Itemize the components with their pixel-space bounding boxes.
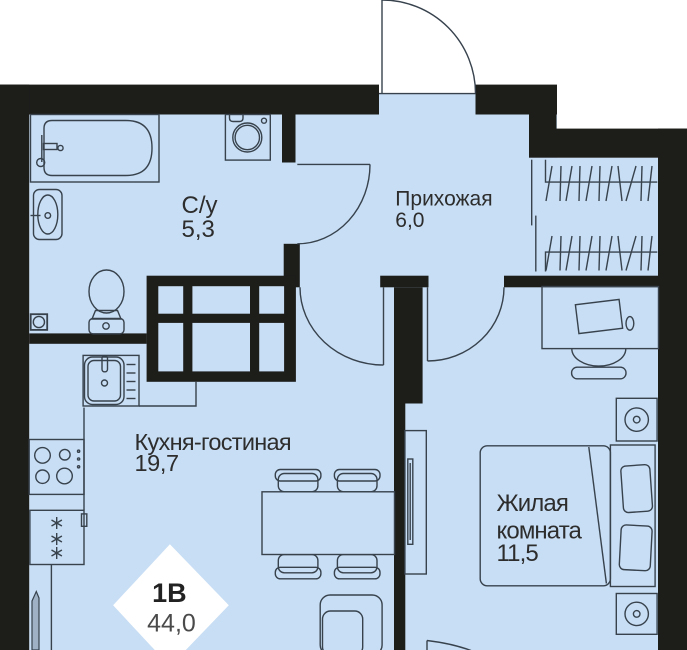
svg-text:С/у: С/у bbox=[182, 192, 218, 219]
svg-text:44,0: 44,0 bbox=[147, 609, 196, 637]
svg-text:19,7: 19,7 bbox=[135, 450, 179, 476]
svg-text:11,5: 11,5 bbox=[497, 540, 539, 567]
svg-text:Жилая: Жилая bbox=[497, 490, 568, 517]
svg-text:Прихожая: Прихожая bbox=[395, 188, 492, 211]
svg-text:1В: 1В bbox=[152, 578, 187, 608]
svg-text:5,3: 5,3 bbox=[182, 216, 215, 243]
svg-text:6,0: 6,0 bbox=[395, 209, 424, 232]
